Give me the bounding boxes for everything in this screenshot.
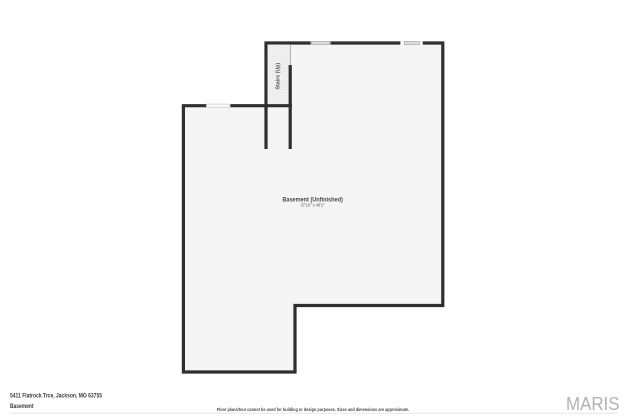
svg-text:Floor plans/tour cannot be use: Floor plans/tour cannot be used for buil… xyxy=(217,407,409,412)
svg-text:MARIS: MARIS xyxy=(566,393,620,414)
svg-text:37'10" x 48'2": 37'10" x 48'2" xyxy=(301,202,325,207)
svg-text:Basement: Basement xyxy=(10,403,34,410)
svg-text:Stairs (Up): Stairs (Up) xyxy=(276,63,282,90)
svg-text:5411 Flatrock Trce, Jackson, M: 5411 Flatrock Trce, Jackson, MO 63755 xyxy=(10,392,102,399)
